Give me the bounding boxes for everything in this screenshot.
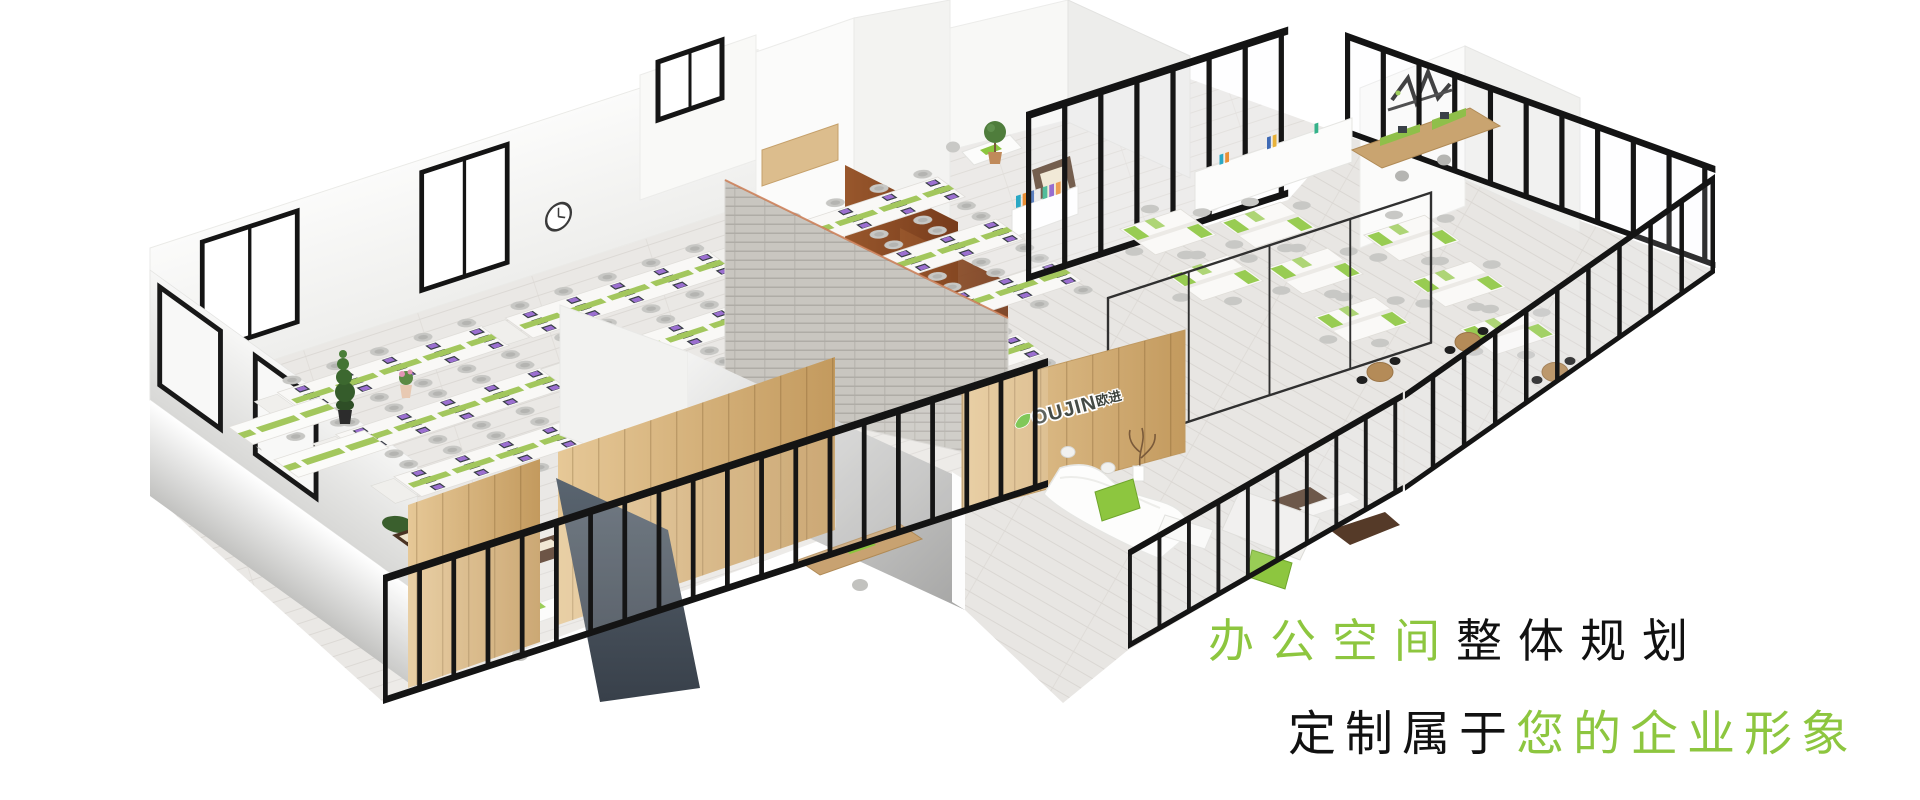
headline-ink-text: 定制属于 (1288, 706, 1516, 762)
office-plan-poster: OUJIN 欧进 (0, 0, 1920, 800)
headline-line-2: 定制属于您的企业形象 (1288, 710, 1858, 758)
headline-accent-text: 您的企业形象 (1516, 706, 1858, 762)
headline-line-1: 办公空间整体规划 (1208, 618, 1704, 664)
window-2 (422, 144, 508, 290)
headline-ink-text: 整体规划 (1456, 614, 1704, 668)
reception-chair (1061, 447, 1075, 458)
office-rendering-illustration: OUJIN 欧进 (0, 0, 1920, 800)
headline-accent-text: 办公空间 (1208, 614, 1456, 668)
office-chair (946, 142, 960, 153)
reception-chair (1101, 463, 1115, 474)
